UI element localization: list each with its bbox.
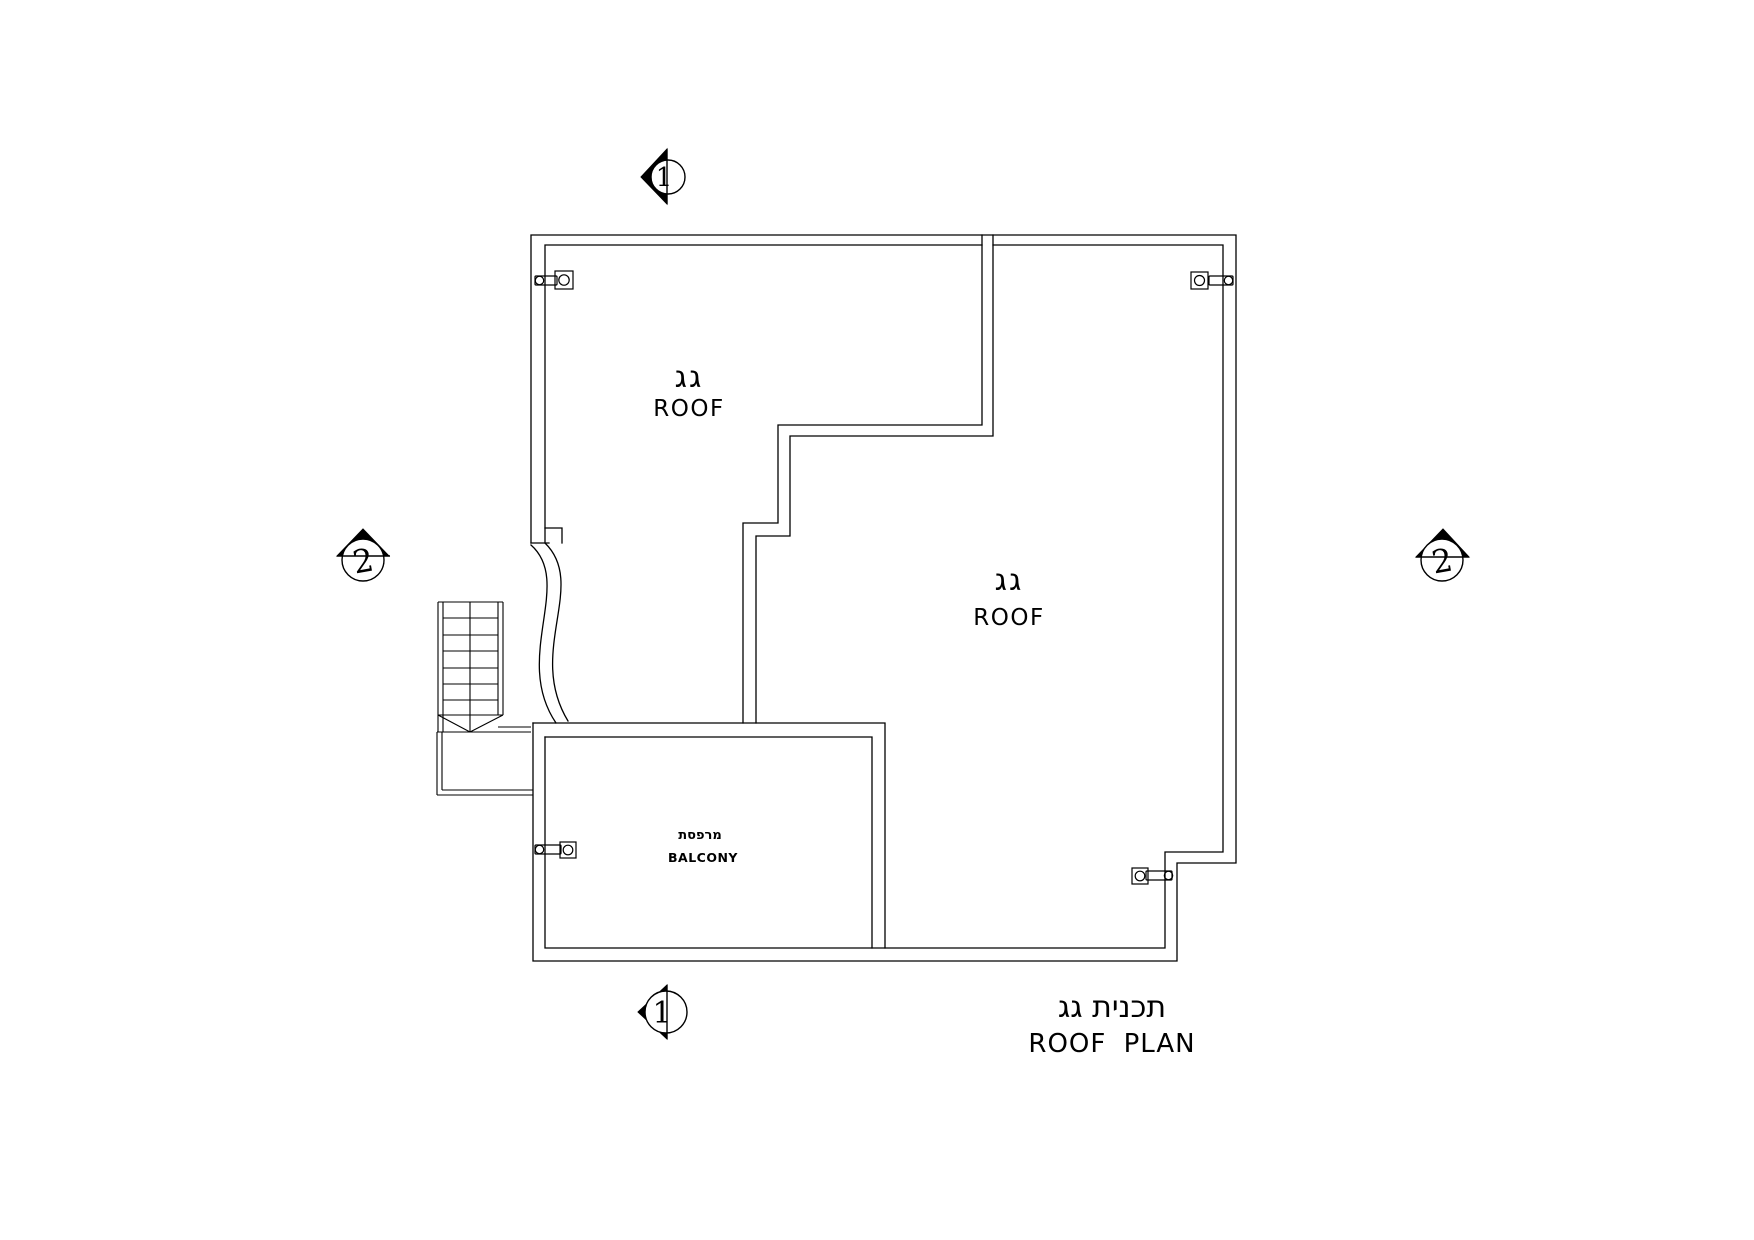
stair-landing [437,727,533,795]
outer-wall [531,235,1236,961]
section-marker-2-left: 2 [337,529,390,581]
label-roof-upper-left: גג ROOF [653,360,724,422]
drawing-title: תכנית גג ROOF PLAN [1028,990,1195,1059]
section-marker-1-bottom: 1 [638,985,687,1039]
room-label-english: ROOF [973,605,1044,631]
drain-icon-top-left [535,271,573,289]
drain-icon-top-right [1191,272,1233,289]
room-label-english: BALCONY [668,850,738,865]
title-english: ROOF PLAN [1028,1029,1195,1059]
room-label-english: ROOF [653,396,724,422]
label-balcony: מרפסת BALCONY [668,828,738,865]
section-marker-1-top: 1 [641,149,685,204]
stair-stringers [438,602,503,732]
room-label-hebrew: גג [995,563,1024,598]
drain-icon-balcony-left [535,842,576,858]
drain-icon-bottom-right [1132,868,1173,884]
roof-divider-wall [743,235,993,723]
title-hebrew: תכנית גג [1058,990,1166,1025]
section-number: 1 [652,996,671,1031]
roof-plan-drawing: 1 1 2 2 גג ROOF גג ROOF [0,0,1754,1240]
room-label-hebrew: גג [675,360,704,395]
room-label-hebrew: מרפסת [678,828,722,843]
section-number: 1 [656,163,673,193]
staircase [437,602,533,795]
plan-svg: 1 1 2 2 גג ROOF גג ROOF [0,0,1754,1240]
label-roof-main: גג ROOF [973,563,1044,631]
inner-wall [545,245,1223,948]
curved-wall [531,528,568,723]
section-marker-2-right: 2 [1416,529,1469,581]
